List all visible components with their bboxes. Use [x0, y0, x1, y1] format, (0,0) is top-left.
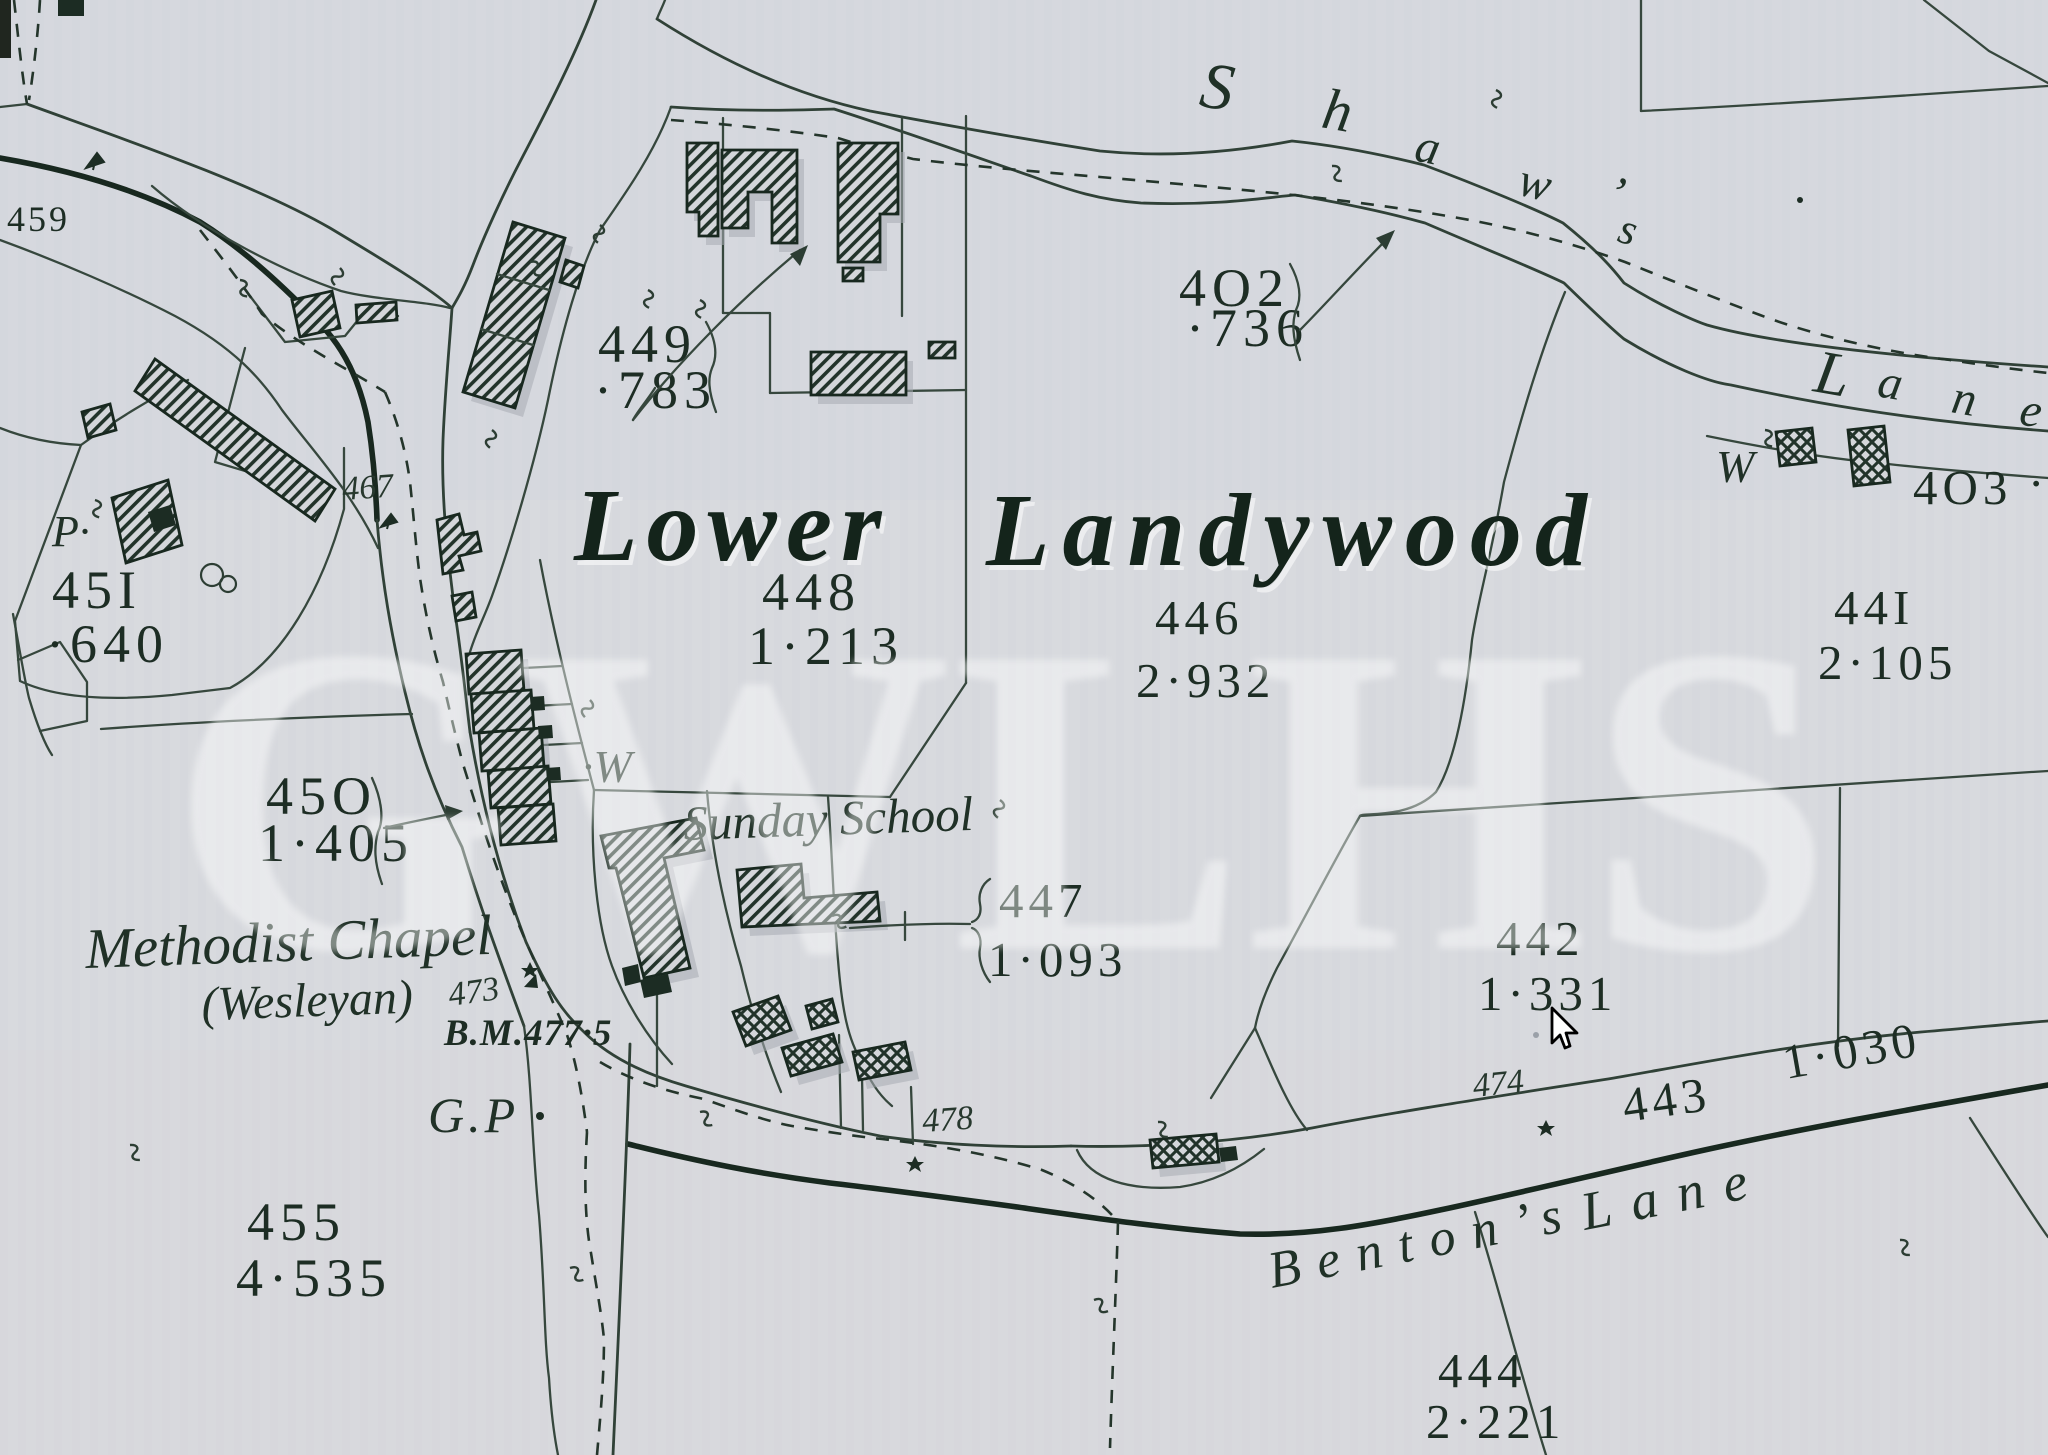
svg-text:·640: ·640 — [46, 614, 169, 674]
svg-text:45I: 45I — [52, 560, 142, 620]
svg-text:W: W — [1716, 441, 1758, 492]
svg-text:459: 459 — [7, 199, 70, 239]
svg-text:4·535: 4·535 — [236, 1248, 392, 1308]
svg-text:44I: 44I — [1834, 580, 1914, 635]
svg-text:·736: ·736 — [1186, 298, 1309, 358]
svg-text:474: 474 — [1471, 1063, 1526, 1105]
svg-text:444: 444 — [1438, 1343, 1527, 1398]
svg-text:4O3: 4O3 — [1913, 460, 2012, 515]
svg-text:·3: ·3 — [2028, 456, 2048, 511]
svg-text:478: 478 — [921, 1100, 974, 1140]
svg-text:467: 467 — [341, 467, 396, 508]
svg-text:·783: ·783 — [594, 360, 717, 420]
svg-text:455: 455 — [247, 1192, 346, 1252]
svg-text:2·221: 2·221 — [1426, 1394, 1565, 1449]
svg-text:GWLHS: GWLHS — [170, 557, 1833, 1044]
svg-text:G.P: G.P — [428, 1087, 519, 1143]
svg-text:2·105: 2·105 — [1818, 635, 1957, 690]
svg-text:P·: P· — [51, 507, 90, 556]
